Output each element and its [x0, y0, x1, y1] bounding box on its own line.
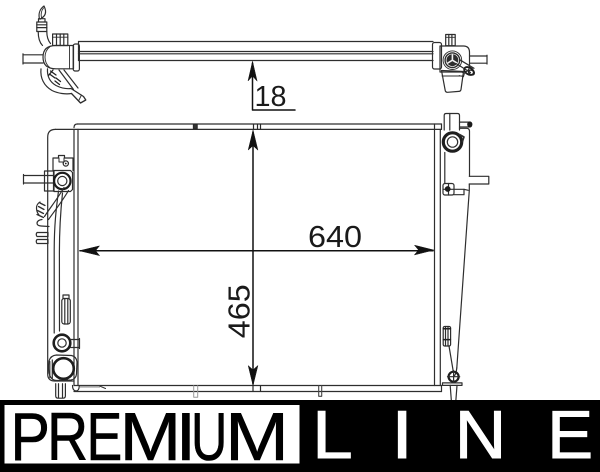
svg-text:465: 465	[222, 284, 257, 338]
svg-text:E: E	[87, 399, 123, 472]
svg-text:R: R	[47, 399, 88, 472]
svg-text:P: P	[11, 398, 50, 472]
svg-text:N: N	[455, 397, 507, 472]
svg-text:E: E	[547, 397, 593, 472]
svg-text:M: M	[120, 400, 182, 472]
svg-text:M: M	[225, 399, 289, 472]
svg-text:L: L	[312, 396, 352, 472]
svg-text:18: 18	[255, 81, 287, 113]
svg-text:U: U	[191, 399, 227, 472]
svg-text:I: I	[391, 397, 413, 472]
svg-text:640: 640	[308, 220, 362, 254]
